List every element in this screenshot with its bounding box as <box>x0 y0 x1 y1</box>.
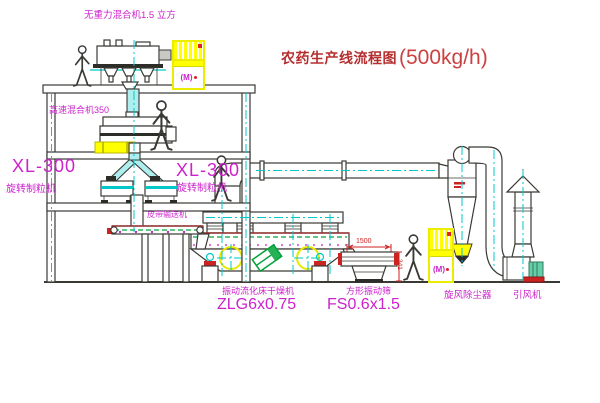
label-granulator-model-left: XL-300 <box>12 157 76 175</box>
high-speed-mixer <box>95 112 176 153</box>
label-granulator-name-left: 旋转制粒机 <box>6 185 56 195</box>
label-fan: 引风机 <box>513 291 542 301</box>
indicator-light <box>446 268 449 271</box>
label-cyclone: 旋风除尘器 <box>444 291 492 301</box>
person-roof <box>74 46 91 86</box>
indicator-light <box>447 232 451 236</box>
label-belt-conveyor: 皮带输送机 <box>147 211 187 219</box>
indicator-light <box>194 76 197 79</box>
cabinet-vent-panel <box>174 42 203 61</box>
indicator-light <box>198 44 202 48</box>
cabinet-marking: (M) <box>181 73 193 82</box>
label-dryer-model: ZLG6x0.75 <box>217 297 296 313</box>
dimension-sieve-height: 341 <box>396 259 403 270</box>
cabinet-panel: (M) <box>174 67 203 88</box>
dryer-bellows <box>207 223 338 233</box>
drawing-title: 农药生产线流程图 (500kg/h) <box>281 46 488 70</box>
control-cabinet-ground: (M) <box>428 228 454 283</box>
dimension-sieve-length: 1500 <box>356 238 372 245</box>
label-granulator-name-right: 旋转制粒机 <box>177 184 227 194</box>
label-high-speed-mixer: 高速混合机350 <box>49 106 109 115</box>
cad-process-flow-drawing: (M) (M) 农药生产线流程图 (500kg/h) 无重力混合机1.5 立方 … <box>0 0 600 403</box>
cabinet-vent-panel <box>430 230 452 251</box>
title-text: 农药生产线流程图 <box>281 48 397 68</box>
cabinet-marking: (M) <box>433 265 445 274</box>
title-capacity: (500kg/h) <box>399 46 488 70</box>
control-cabinet-roof: (M) <box>172 40 205 90</box>
label-top-mixer: 无重力混合机1.5 立方 <box>84 11 176 21</box>
cabinet-panel: (M) <box>430 257 452 281</box>
label-sieve-name: 方形振动筛 <box>346 287 391 296</box>
label-dryer-name: 振动流化床干燥机 <box>222 287 294 296</box>
label-sieve-model: FS0.6x1.5 <box>327 297 400 313</box>
person-ground <box>404 235 423 280</box>
label-granulator-model-right: XL-300 <box>176 161 240 179</box>
